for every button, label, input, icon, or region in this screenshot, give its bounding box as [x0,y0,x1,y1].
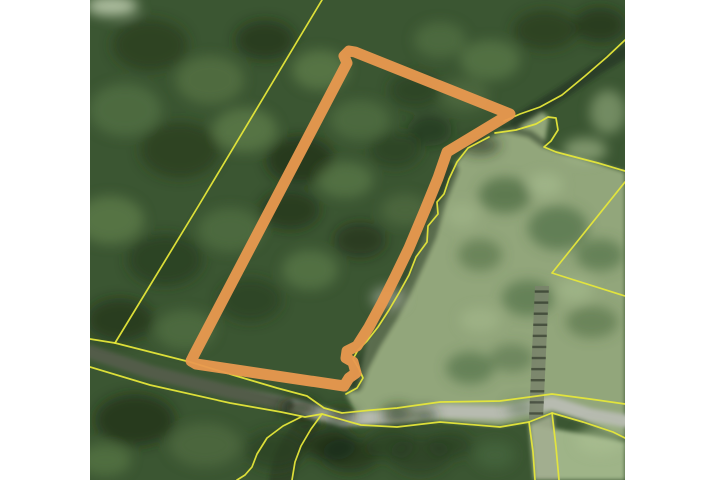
vegetation-blob [414,22,466,58]
vegetation-blob [169,423,241,467]
vegetation-blob [330,100,390,140]
vegetation-blob [282,250,338,290]
vegetation-blob [304,429,356,461]
vegetation-blob [490,344,534,372]
vegetation-blob [479,177,531,213]
map-viewport[interactable] [0,0,720,480]
vegetation-blob [366,429,414,461]
aerial-map[interactable] [0,0,720,480]
vegetation-blob [317,162,373,198]
vegetation-blob [574,7,626,43]
vegetation-blob [334,222,386,258]
vegetation-blob [428,431,472,459]
vegetation-blob [112,19,188,71]
vegetation-blob [79,444,131,476]
vegetation-blob [213,108,277,152]
vegetation-blob [460,40,520,80]
vegetation-blob [590,90,626,134]
vegetation-blob [95,394,175,446]
vegetation-blob [475,441,515,469]
vegetation-blob [446,352,494,384]
vegetation-blob [528,206,588,250]
vegetation-blob [76,196,144,244]
vegetation-blob [563,138,607,162]
vegetation-blob [408,114,452,146]
vegetation-blob [446,203,478,227]
vegetation-blob [89,84,161,136]
vegetation-blob [527,173,563,197]
vegetation-blob [460,308,500,332]
vegetation-blob [557,278,593,302]
vegetation-blob [576,426,624,454]
vegetation-blob [140,122,220,178]
vegetation-blob [513,10,577,50]
vegetation-blob [176,56,244,104]
vegetation-blob [458,239,502,271]
vegetation-blob [566,306,618,338]
vegetation-blob [413,408,437,424]
vegetation-blob [576,239,624,271]
vegetation-blob [235,20,295,60]
